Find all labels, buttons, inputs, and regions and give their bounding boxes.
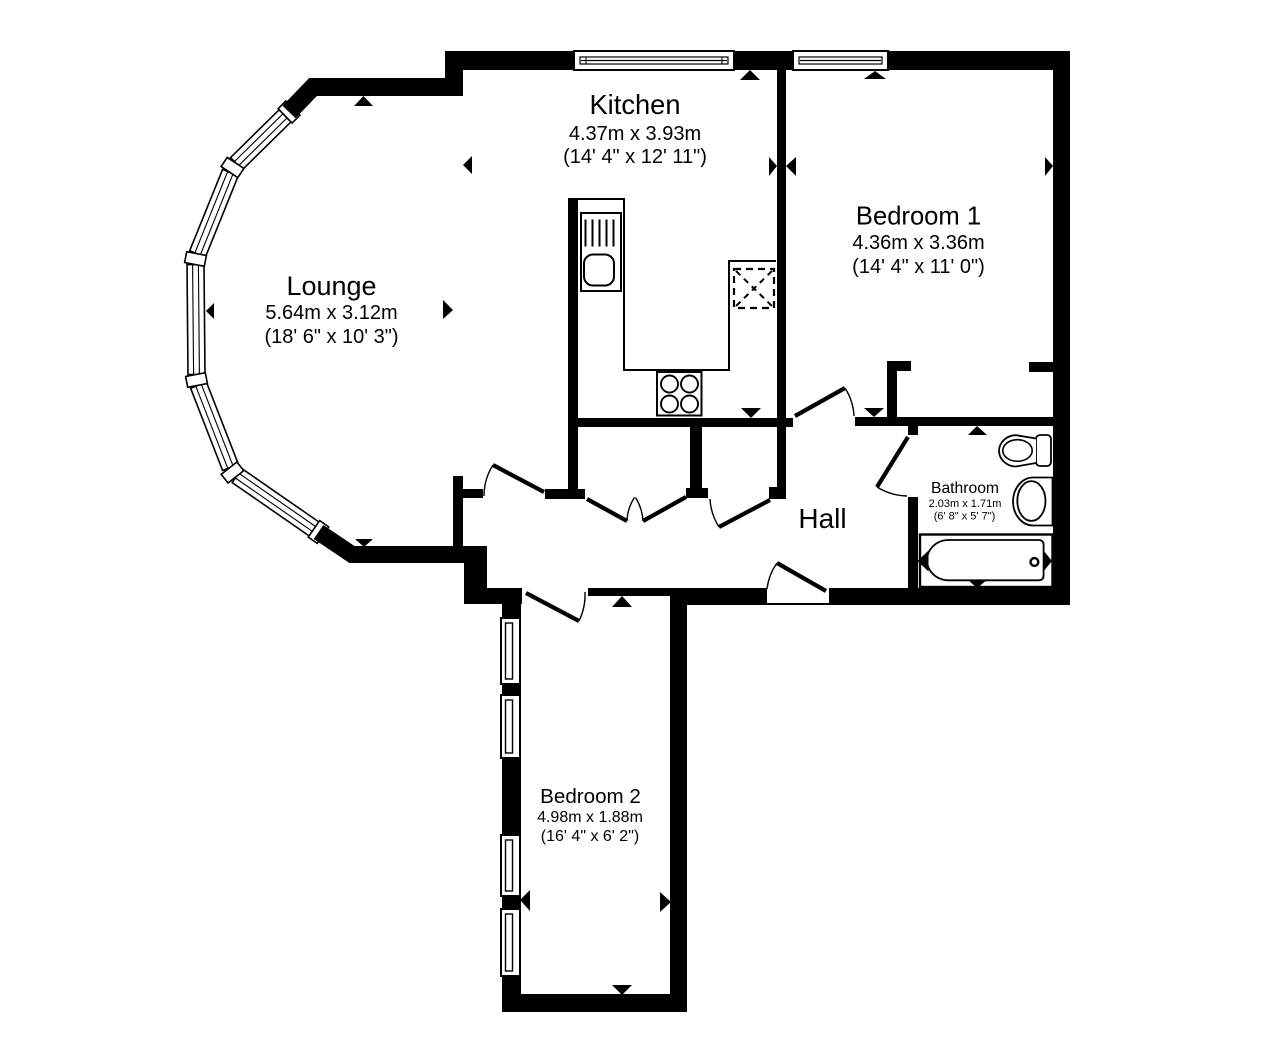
svg-text:Kitchen: Kitchen: [589, 89, 680, 120]
svg-text:(16' 4" x 6' 2"): (16' 4" x 6' 2"): [541, 828, 639, 845]
svg-text:Bathroom: Bathroom: [931, 480, 999, 497]
svg-text:4.36m x 3.36m: 4.36m x 3.36m: [852, 232, 984, 254]
svg-text:4.37m x 3.93m: 4.37m x 3.93m: [569, 123, 701, 145]
svg-text:Bedroom 2: Bedroom 2: [540, 785, 641, 808]
svg-text:(14' 4" x 12' 11"): (14' 4" x 12' 11"): [563, 146, 707, 168]
svg-text:2.03m x 1.71m: 2.03m x 1.71m: [929, 498, 1002, 510]
svg-text:(6' 8" x 5' 7"): (6' 8" x 5' 7"): [934, 511, 996, 523]
svg-text:Lounge: Lounge: [286, 271, 376, 301]
svg-text:5.64m x 3.12m: 5.64m x 3.12m: [265, 302, 397, 324]
svg-text:Hall: Hall: [798, 503, 846, 534]
svg-text:(14' 4" x 11' 0"): (14' 4" x 11' 0"): [852, 256, 985, 278]
svg-text:(18' 6" x 10' 3"): (18' 6" x 10' 3"): [264, 326, 398, 348]
svg-text:Bedroom 1: Bedroom 1: [856, 203, 981, 231]
svg-text:4.98m x 1.88m: 4.98m x 1.88m: [537, 809, 643, 826]
